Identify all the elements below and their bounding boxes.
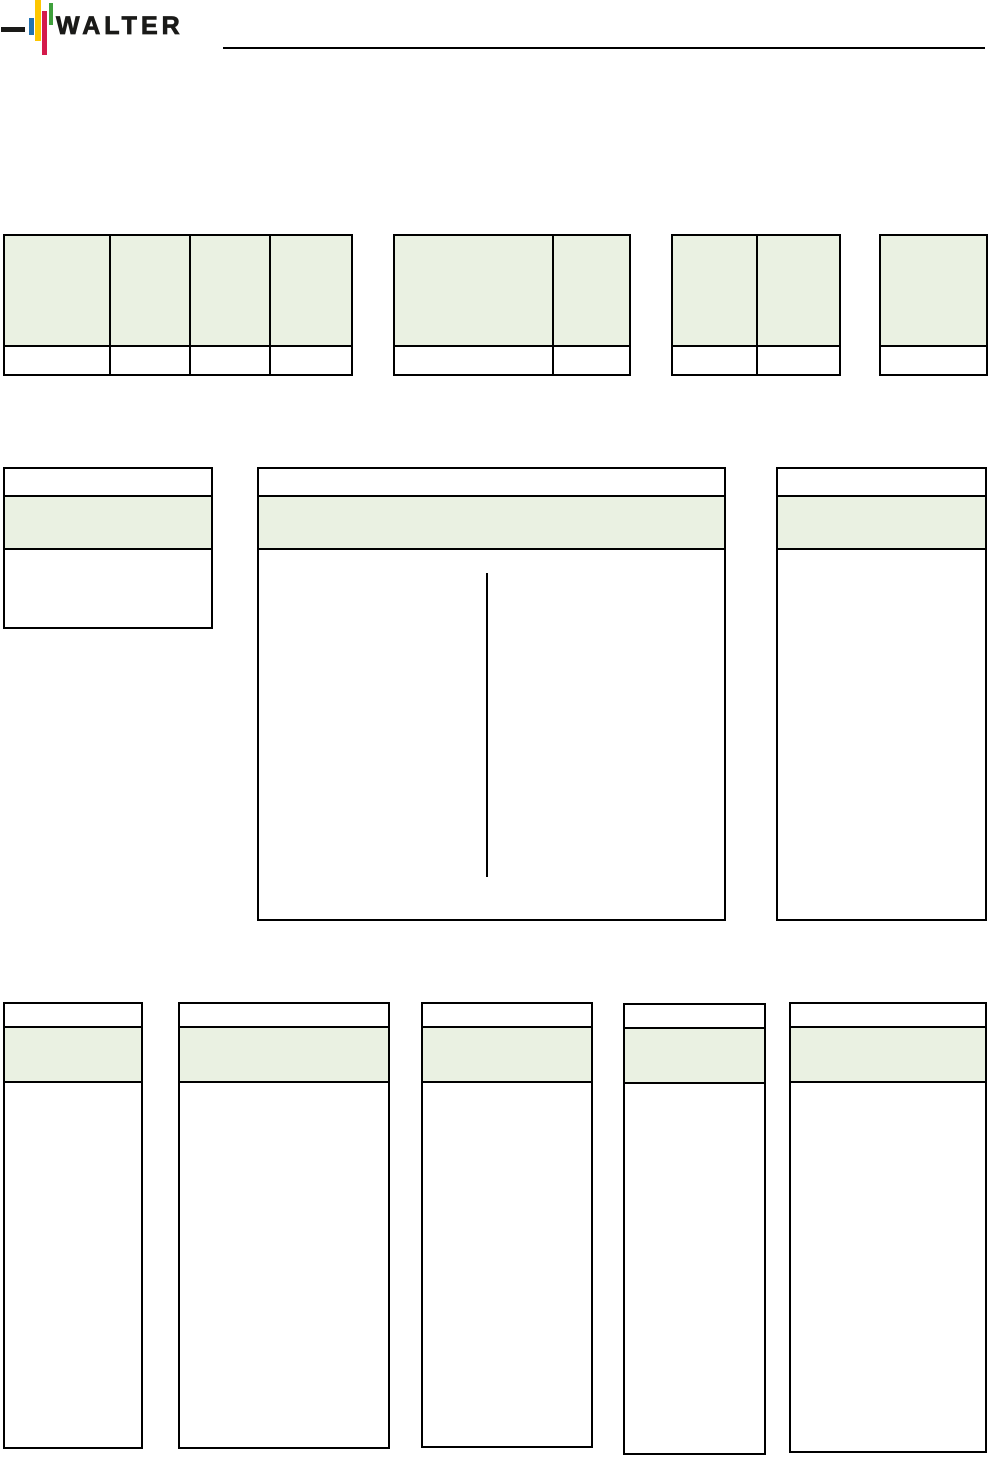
table-body-row [5, 347, 351, 372]
table-top-row [791, 1004, 985, 1028]
table-body-row [395, 347, 629, 372]
table-top-row [625, 1005, 764, 1029]
table-header-band [5, 497, 211, 550]
bottom-box-5 [789, 1002, 987, 1453]
middle-center-box [257, 467, 726, 921]
column-divider [756, 236, 758, 374]
top-table-4 [879, 234, 988, 376]
logo-bar-yellow-icon [35, 0, 41, 41]
table-top-row [180, 1004, 388, 1028]
column-divider [269, 236, 271, 374]
table-header-band [625, 1029, 764, 1084]
column-divider [189, 236, 191, 374]
table-header-band [881, 236, 986, 347]
middle-left-box [3, 467, 213, 629]
table-header-band [259, 497, 724, 550]
table-header-band [778, 497, 985, 550]
table-header-band [423, 1028, 591, 1083]
table-body-row [881, 347, 986, 372]
table-top-row [778, 469, 985, 497]
table-top-row [423, 1004, 591, 1028]
table-header-band [5, 236, 351, 347]
walter-wordmark: WALTER [56, 12, 184, 41]
walter-logo: WALTER [0, 0, 220, 60]
logo-bar-blue-icon [29, 18, 34, 35]
table-header-band [180, 1028, 388, 1083]
table-top-row [5, 469, 211, 497]
top-table-2 [393, 234, 631, 376]
column-divider [552, 236, 554, 374]
table-header-band [395, 236, 629, 347]
top-table-1 [3, 234, 353, 376]
bottom-box-3 [421, 1002, 593, 1448]
middle-right-box [776, 467, 987, 921]
table-top-row [259, 469, 724, 497]
logo-bar-green-icon [49, 3, 53, 25]
bottom-box-2 [178, 1002, 390, 1449]
table-top-row [5, 1004, 141, 1028]
top-table-3 [671, 234, 841, 376]
column-divider [109, 236, 111, 374]
bottom-box-1 [3, 1002, 143, 1449]
table-header-band [5, 1028, 141, 1083]
vertical-dimension-line [486, 573, 488, 877]
table-header-band [791, 1028, 985, 1083]
header-rule [223, 47, 985, 49]
catalog-page: WALTER [0, 0, 988, 1458]
logo-dash-icon [1, 27, 25, 32]
bottom-box-4 [623, 1003, 766, 1455]
logo-bar-red-icon [42, 11, 47, 55]
